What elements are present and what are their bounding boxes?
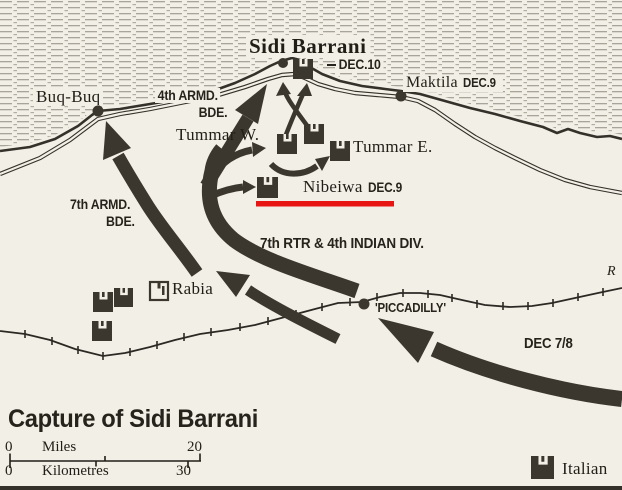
fort-icon-rabia-1 [93, 292, 113, 312]
label-dec-7-8: DEC 7/8 [524, 336, 573, 352]
label-4th-armd-line2: BDE. [196, 105, 230, 120]
scale-miles-max: 20 [187, 440, 202, 456]
map-title: Capture of Sidi Barrani [8, 406, 258, 432]
town-dot-maktila [396, 91, 407, 102]
scale-miles-zero: 0 [5, 440, 13, 456]
label-buq-buq: Buq-Buq [33, 88, 103, 106]
scale-km-label: Kilometres [42, 464, 109, 480]
label-maktila: Maktila [406, 75, 458, 92]
label-tummar-west: Tummar W. [176, 126, 259, 144]
fort-icon-tummar-west [277, 134, 297, 154]
label-maktila-date: DEC.9 [463, 76, 496, 90]
town-dot-piccadilly [359, 299, 370, 310]
bottom-border [0, 486, 622, 490]
label-tummar-east: Tummar E. [353, 138, 433, 156]
label-sidi-barrani: Sidi Barrani [246, 35, 369, 57]
fort-icon-nibeiwa [257, 177, 278, 198]
arrow-dec-7-8 [378, 318, 622, 399]
legend-italian-label: Italian [562, 460, 608, 478]
label-nibeiwa-date: DEC.9 [368, 181, 402, 195]
scale-km-zero: 0 [5, 464, 13, 480]
battle-map: Sidi Barrani DEC.10 Maktila DEC.9 Buq-Bu… [0, 0, 622, 490]
label-maktila-group: Maktila DEC.9 [403, 75, 503, 92]
fort-icon-legend-italian [531, 456, 554, 479]
fort-icon-tummar-east [330, 141, 350, 161]
label-nibeiwa-group: Nibeiwa DEC.9 [303, 178, 406, 196]
red-underline-nibeiwa [256, 201, 394, 207]
scale-miles-label: Miles [42, 440, 76, 456]
arrow-main-stream [209, 142, 357, 291]
label-sidi-barrani-date: DEC.10 [336, 57, 383, 72]
label-rabia: Rabia [172, 280, 213, 298]
fort-icon-rabia-2 [114, 288, 133, 307]
fort-icon-tummar-center [304, 124, 324, 144]
arrow-tummar-east [271, 156, 330, 174]
fort-icon-sidi-barrani [293, 59, 313, 79]
label-4th-armd-line1: 4th ARMD. [155, 88, 221, 103]
label-railway-r: R [607, 265, 616, 280]
label-7th-armd-line1: 7th ARMD. [70, 197, 130, 212]
fort-icon-rabia-3 [92, 321, 112, 341]
scale-km-max: 30 [176, 464, 191, 480]
label-nibeiwa: Nibeiwa [303, 178, 363, 196]
town-dot-buq-buq [93, 106, 104, 117]
label-piccadilly: 'PICCADILLY' [375, 301, 446, 315]
town-dot-sidi-barrani [278, 58, 288, 68]
label-7th-rtr-4th-indian: 7th RTR & 4th INDIAN DIV. [260, 236, 424, 252]
fort-icon-rabia-outline [150, 282, 168, 300]
label-7th-armd-line2: BDE. [106, 214, 135, 229]
